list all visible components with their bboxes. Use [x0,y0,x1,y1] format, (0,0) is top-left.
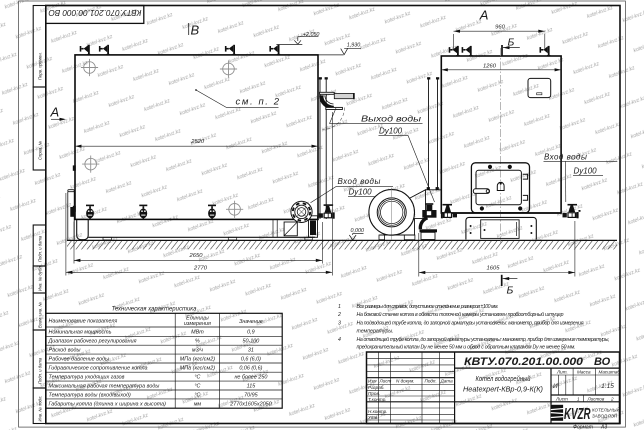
svg-text:Масштаб: Масштаб [599,369,621,374]
svg-text:°С: °С [194,392,200,398]
svg-text:1605: 1605 [487,266,501,272]
svg-text:Инв. № подл.: Инв. № подл. [38,396,43,422]
svg-text:1,930: 1,930 [347,43,361,49]
svg-text:На отводящей трубе котла ,до з: На отводящей трубе котла ,до запорной ар… [357,336,610,343]
svg-text:КВТУ.070.201.00.000 ВО: КВТУ.070.201.00.000 ВО [48,8,142,17]
svg-text:МПа (кгс/см2): МПа (кгс/см2) [180,356,215,362]
svg-text:Наименование показателя: Наименование показателя [49,319,118,325]
svg-text:Подп. и дата: Подп. и дата [38,357,43,384]
svg-text:1: 1 [338,304,341,310]
svg-text:Габариты котла (длинна х ширин: Габариты котла (длинна х ширина х высота… [49,401,167,407]
svg-text:Справ. №: Справ. № [38,141,43,160]
svg-text:измерения: измерения [184,321,211,327]
svg-text:Т.контр.: Т.контр. [368,397,387,402]
svg-text:Расход воды: Расход воды [49,348,81,354]
svg-text:%: % [195,339,200,345]
svg-text:2770: 2770 [193,266,208,272]
svg-text:50-100: 50-100 [243,339,260,345]
svg-text:Вход воды: Вход воды [544,153,587,162]
svg-text:0,000: 0,000 [351,228,365,234]
svg-text:Диапазон рабочего регулировани: Диапазон рабочего регулирования [48,339,137,345]
svg-text:Дата: Дата [440,379,454,384]
svg-text:м3/ч: м3/ч [192,348,203,354]
svg-text:Формат: Формат [573,424,593,430]
svg-text:В: В [191,23,200,38]
svg-text:И: И [553,383,558,390]
svg-text:Номинальная мощность: Номинальная мощность [49,330,112,336]
svg-text:0,06 (0,6): 0,06 (0,6) [239,366,262,372]
svg-text:°С: °С [194,383,200,389]
svg-text:Все размеры для справок, допус: Все размеры для справок, допустимое откл… [357,304,499,310]
svg-text:115: 115 [247,383,257,389]
svg-text:На подводящей трубе котла, до: На подводящей трубе котла, до запорной а… [357,319,584,326]
svg-text:2: 2 [337,312,341,318]
svg-text:Листов: Листов [587,396,605,401]
svg-text:1:15: 1:15 [601,383,614,390]
svg-text:Лист: Лист [379,379,392,384]
svg-text:N докум.: N докум. [396,379,415,384]
svg-text:Рабочее давление воды: Рабочее давление воды [49,356,109,362]
svg-text:2770х1605х2050: 2770х1605х2050 [229,401,271,407]
svg-text:предохранительный клапан Dу не: предохранительный клапан Dу не менее 50 … [357,344,576,351]
svg-text:МВт: МВт [191,330,204,336]
svg-text:Температура уходящих газов: Температура уходящих газов [49,375,125,381]
svg-text:Изм: Изм [368,379,377,384]
svg-text:Инв. № дубл.: Инв. № дубл. [38,265,43,291]
svg-text:Перв. примен.: Перв. примен. [38,52,43,80]
svg-text:KVZR: KVZR [564,406,591,423]
svg-text:Пров.: Пров. [368,391,380,396]
svg-text:Подп.: Подп. [425,379,437,384]
svg-text:ВО: ВО [594,356,611,368]
svg-text:+2,050: +2,050 [303,32,320,38]
svg-text:2520: 2520 [190,139,205,145]
svg-text:Выход воды: Выход воды [361,115,421,124]
svg-text:Вход воды: Вход воды [338,177,381,186]
svg-text:см. п. 2: см. п. 2 [236,97,281,108]
svg-text:Dy100: Dy100 [574,167,598,176]
svg-text:70/95: 70/95 [244,392,258,398]
svg-text:МПа (кгс/см2): МПа (кгс/см2) [180,366,215,372]
svg-text:Утв.: Утв. [368,415,378,420]
svg-text:мм: мм [194,401,202,407]
svg-text:не более 250: не более 250 [234,375,267,381]
svg-text:Значение: Значение [239,319,263,325]
svg-text:Максимальная рабочая температу: Максимальная рабочая температура воды [49,383,160,389]
svg-text:1: 1 [577,396,580,401]
svg-text:0,9: 0,9 [247,330,255,336]
svg-text:Техническая характеристика: Техническая характеристика [112,307,198,313]
svg-text:Разраб.: Разраб. [368,385,385,390]
svg-text:Б: Б [508,36,515,48]
svg-text:Подп. и дата: Подп. и дата [38,235,43,262]
svg-text:31: 31 [248,348,254,354]
svg-text:А: А [50,105,60,120]
svg-text:ЗАВОД РЭП: ЗАВОД РЭП [592,414,618,419]
svg-text:2: 2 [610,396,614,401]
svg-text:На боковой стенке котла в обла: На боковой стенке котла в области топочн… [357,311,564,318]
svg-text:Н.контр.: Н.контр. [368,409,387,414]
svg-text:2650: 2650 [189,253,204,259]
svg-text:3: 3 [338,320,341,326]
svg-text:Dy100: Dy100 [379,127,403,136]
svg-text:Масса: Масса [577,369,591,374]
svg-text:Температура воды (вход/выход): Температура воды (вход/выход) [49,392,132,398]
svg-text:°С: °С [194,375,200,381]
svg-text:А: А [479,8,489,23]
svg-text:А3: А3 [600,424,607,430]
svg-text:Лит.: Лит. [556,369,568,374]
svg-text:Б: Б [507,285,514,297]
svg-text:Heatexpert-КВр-0,9-К(К): Heatexpert-КВр-0,9-К(К) [463,387,543,394]
svg-text:Гидравлическое сопротивление к: Гидравлическое сопротивление котла [49,366,148,372]
svg-text:0,6 (6,0): 0,6 (6,0) [241,356,261,362]
svg-text:1260: 1260 [483,64,497,70]
svg-text:Dy100: Dy100 [349,188,373,197]
svg-text:КВТУ.070.201.00.000: КВТУ.070.201.00.000 [464,356,584,368]
svg-text:КОТЕЛЬНЫЙ: КОТЕЛЬНЫЙ [592,408,620,413]
svg-text:4: 4 [338,337,341,343]
svg-text:Котел водогрейный: Котел водогрейный [476,375,531,383]
svg-text:Лист: Лист [555,396,568,401]
svg-text:960: 960 [495,25,505,31]
svg-text:Взам. инв. №: Взам. инв. № [38,302,43,328]
svg-text:температуры.: температуры. [357,328,394,334]
